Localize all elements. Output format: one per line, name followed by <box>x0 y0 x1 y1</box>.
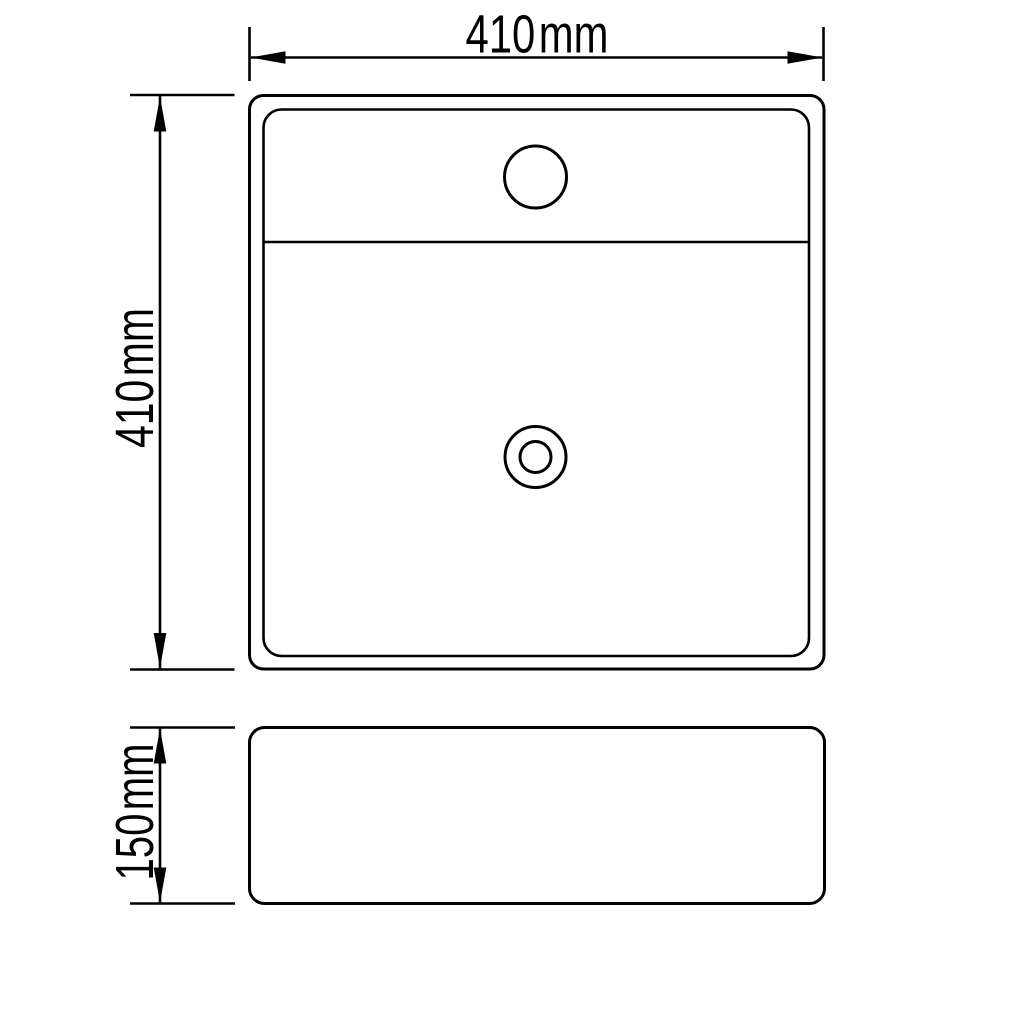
svg-text:150 mm: 150 mm <box>105 744 165 881</box>
svg-text:410 mm: 410 mm <box>105 308 165 448</box>
svg-text:410 mm: 410 mm <box>466 5 609 65</box>
